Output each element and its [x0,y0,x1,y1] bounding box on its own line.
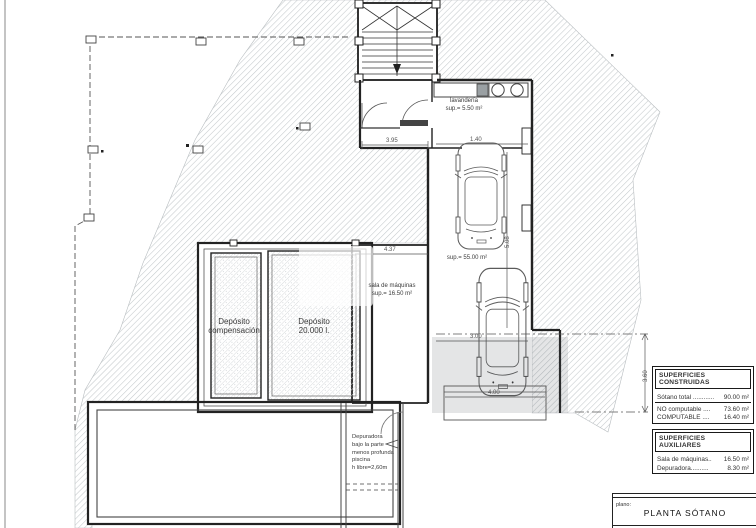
purifier-note-line3: menos profunda piscina [352,450,412,466]
table-row: Depuradora.......... 8.30 m² [653,465,753,474]
machine-room-label: sala de máquinas [358,283,426,290]
table-row: Sótano total ............ 90.00 m² [653,391,753,402]
dim-hall-width: 3.95 [386,138,398,144]
title-block: plano: PLANTA SÓTANO [612,493,756,528]
constructed-areas-header: SUPERFICIES CONSTRUIDAS [655,369,751,389]
row-label: NO computable .... [657,406,710,413]
title-block-frame: plano: PLANTA SÓTANO [613,497,756,526]
auxiliary-areas-box: SUPERFICIES AUXILIARES Sala de máquinas.… [652,429,754,475]
table-row: NO computable .... 73.60 m² [653,403,753,414]
row-label: Sótano total ............ [657,394,714,401]
garage-area-label: sup.= 55.00 m² [436,255,498,262]
purifier-note-line4: h libre=2,60m [352,465,412,473]
row-value: 16.50 m² [724,456,749,463]
row-value: 8.30 m² [727,465,749,472]
dim-garage-bay: 1.40 [470,137,482,143]
washing-machine [477,84,488,96]
floor-plan-sheet: lavandería sup.= 5.50 m² sala de máquina… [0,0,756,528]
dim-car-length: 3.00 [470,334,482,340]
machine-room-area: sup.= 16.50 m² [358,291,426,298]
tank-main-line1: Depósito [278,317,350,326]
row-value: 16.40 m² [724,414,749,421]
tank-compensation-label: Depósito compensación [201,317,267,335]
areas-table: SUPERFICIES CONSTRUIDAS Sótano total ...… [652,366,754,479]
table-row: COMPUTABLE .... 16.40 m² [653,414,753,423]
tank-compensation-line2: compensación [201,326,267,335]
row-value: 73.60 m² [724,406,749,413]
row-label: Depuradora.......... [657,465,709,472]
purifier-note: Depuradora bajo la parte menos profunda … [352,434,412,473]
dim-ramp-height: 3.60 [643,370,649,382]
row-label: Sala de máquinas.. [657,456,712,463]
dim-machine-room-width: 4.37 [384,247,396,253]
laundry-room-label: lavandería [434,98,494,105]
row-value: 90.00 m² [724,394,749,401]
purifier-note-line1: Depuradora [352,434,412,442]
tank-main-label: Depósito 20.000 l. [278,317,350,335]
table-row: Sala de máquinas.. 16.50 m² [653,454,753,465]
tank-compensation-line1: Depósito [201,317,267,326]
row-label: COMPUTABLE .... [657,414,709,421]
tank-main-line2: 20.000 l. [278,326,350,335]
sheet-title: PLANTA SÓTANO [613,508,756,518]
dim-garage-length: 5.08 [505,236,511,248]
dim-ramp-width: 4.00 [488,390,500,396]
garage-ramp [432,337,568,420]
auxiliary-areas-header: SUPERFICIES AUXILIARES [655,432,751,452]
constructed-areas-box: SUPERFICIES CONSTRUIDAS Sótano total ...… [652,366,754,424]
purifier-note-line2: bajo la parte [352,442,412,450]
laundry-room-area: sup.= 5.50 m² [434,106,494,113]
